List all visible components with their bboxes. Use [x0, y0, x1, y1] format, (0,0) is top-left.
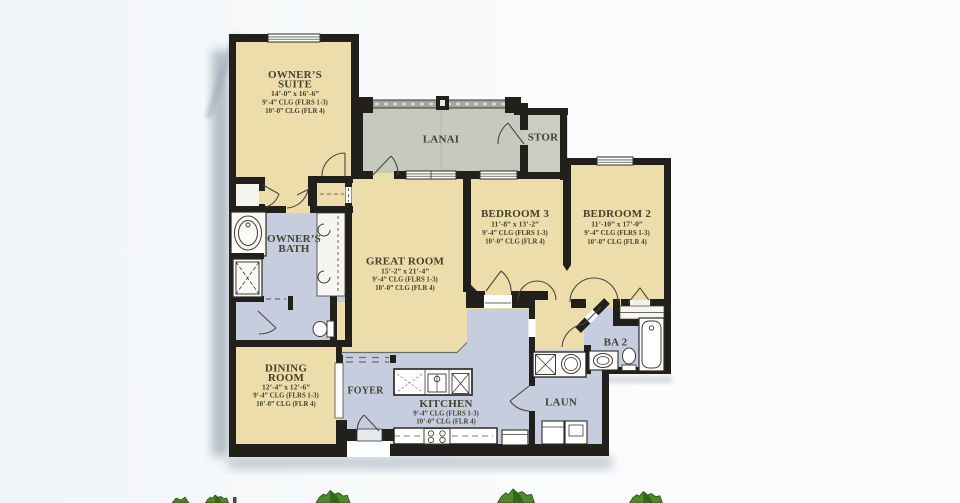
svg-text:9’-4” CLG (FLRS 1-3): 9’-4” CLG (FLRS 1-3): [584, 230, 650, 237]
svg-text:BA 2: BA 2: [604, 337, 628, 349]
svg-text:11’-10” x 17’-0”: 11’-10” x 17’-0”: [591, 220, 643, 229]
svg-text:KITCHEN: KITCHEN: [419, 398, 472, 410]
svg-text:12’-4” x 12’-6”: 12’-4” x 12’-6”: [262, 383, 310, 392]
svg-text:10’-0” CLG (FLR 4): 10’-0” CLG (FLR 4): [587, 239, 646, 246]
svg-text:11’-8” x 13’-2”: 11’-8” x 13’-2”: [491, 220, 539, 229]
svg-text:9’-4” CLG (FLRS 1-3): 9’-4” CLG (FLRS 1-3): [413, 411, 479, 418]
svg-text:BATH: BATH: [278, 243, 309, 255]
svg-text:9’-4” CLG (FLRS 1-3): 9’-4” CLG (FLRS 1-3): [372, 277, 438, 284]
svg-text:BEDROOM 3: BEDROOM 3: [481, 208, 549, 220]
svg-text:15’-2” x 21’-4”: 15’-2” x 21’-4”: [381, 267, 429, 276]
svg-text:LAUN: LAUN: [545, 397, 577, 409]
svg-text:9’-4” CLG (FLRS 1-3): 9’-4” CLG (FLRS 1-3): [253, 393, 319, 400]
svg-text:10’-0” CLG (FLR 4): 10’-0” CLG (FLR 4): [416, 419, 475, 426]
svg-text:9’-4” CLG (FLRS 1-3): 9’-4” CLG (FLRS 1-3): [482, 230, 548, 237]
svg-text:FOYER: FOYER: [348, 386, 385, 397]
svg-text:BEDROOM 2: BEDROOM 2: [583, 208, 651, 220]
svg-text:STOR: STOR: [528, 132, 559, 144]
svg-text:10’-0” CLG (FLR 4): 10’-0” CLG (FLR 4): [375, 285, 434, 292]
svg-text:9’-4” CLG (FLRS 1-3): 9’-4” CLG (FLRS 1-3): [262, 100, 328, 107]
svg-text:10’-0” CLG (FLR 4): 10’-0” CLG (FLR 4): [256, 401, 315, 408]
svg-text:14’-0” x 16’-6”: 14’-0” x 16’-6”: [271, 89, 319, 98]
svg-text:LANAI: LANAI: [423, 134, 459, 146]
svg-text:10’-0” CLG (FLR 4): 10’-0” CLG (FLR 4): [265, 108, 324, 115]
svg-text:10’-0” CLG (FLR 4): 10’-0” CLG (FLR 4): [485, 239, 544, 246]
